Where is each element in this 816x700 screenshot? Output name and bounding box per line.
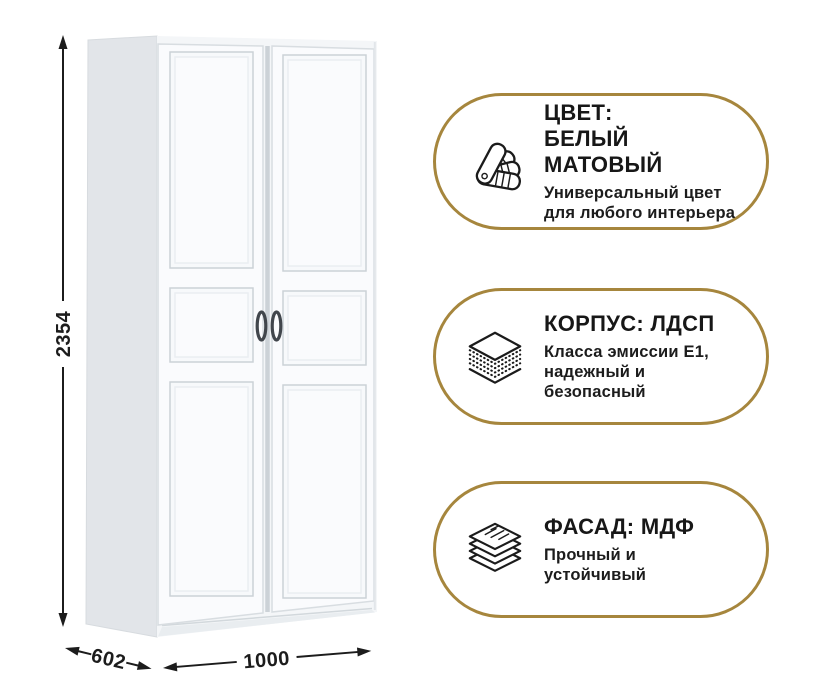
height-dimension: 2354 xyxy=(53,35,75,627)
badge-subtitle: Универсальный цвет для любого интерьера xyxy=(544,183,748,223)
wardrobe-left-door xyxy=(158,44,263,625)
color-swatch-fan-icon xyxy=(464,131,526,193)
badge-title: ЦВЕТ: БЕЛЫЙ МАТОВЫЙ xyxy=(544,100,748,178)
badge-body-material: КОРПУС: ЛДСП Класса эмиссии Е1, надежный… xyxy=(433,288,769,425)
chipboard-layers-icon xyxy=(464,326,526,388)
depth-dimension: 602 xyxy=(62,638,154,680)
wardrobe-illustration xyxy=(86,36,377,637)
product-infographic: 2354 602 1000 xyxy=(0,0,816,700)
width-dimension: 1000 xyxy=(162,641,372,680)
wardrobe-side-panel xyxy=(86,36,157,637)
mdf-sheets-icon xyxy=(464,519,526,581)
badge-color: ЦВЕТ: БЕЛЫЙ МАТОВЫЙ Универсальный цвет д… xyxy=(433,93,769,230)
badge-subtitle: Класса эмиссии Е1, надежный и безопасный xyxy=(544,342,714,402)
badge-title: ФАСАД: МДФ xyxy=(544,514,694,540)
depth-dimension-label: 602 xyxy=(89,645,128,675)
badge-title: КОРПУС: ЛДСП xyxy=(544,311,714,337)
badge-facade-material: ФАСАД: МДФ Прочный и устойчивый xyxy=(433,481,769,618)
badge-subtitle: Прочный и устойчивый xyxy=(544,545,694,585)
height-dimension-label: 2354 xyxy=(53,310,75,357)
wardrobe-dimension-diagram: 2354 602 1000 xyxy=(0,0,430,700)
wardrobe-right-door xyxy=(272,46,374,612)
width-dimension-label: 1000 xyxy=(243,648,291,674)
